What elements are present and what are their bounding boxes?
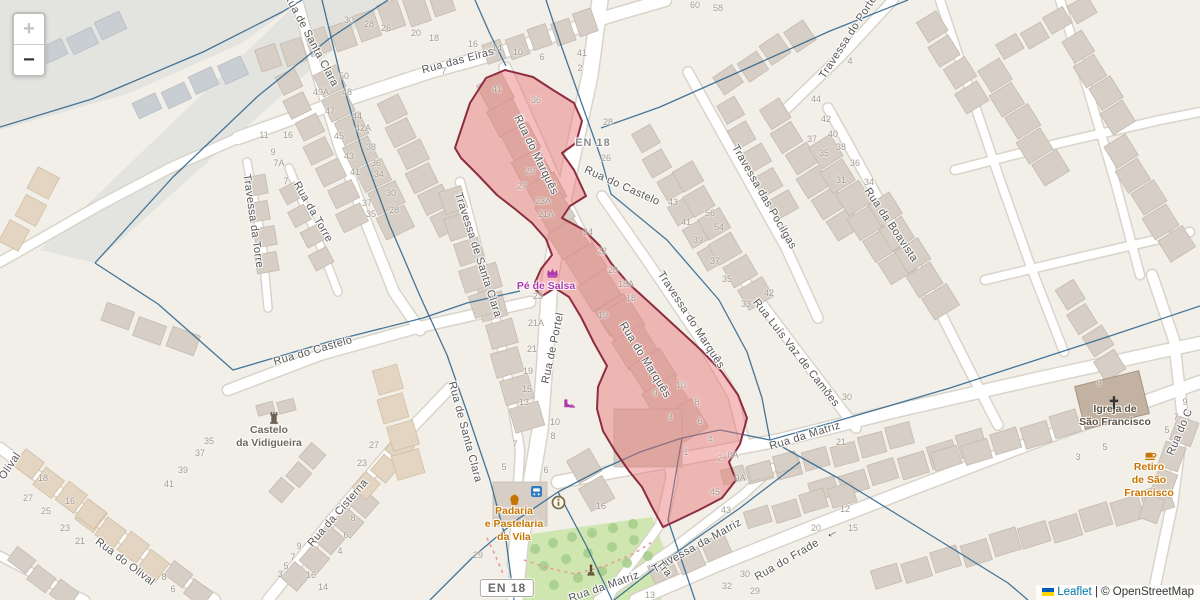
map-canvas[interactable] [0,0,1200,600]
attribution-separator: | [1095,586,1098,598]
ukraine-flag-icon [1042,588,1054,596]
zoom-control[interactable]: + − [12,12,46,77]
leaflet-link[interactable]: Leaflet [1057,586,1092,598]
zoom-out-button[interactable]: − [14,44,44,75]
osm-copyright: © OpenStreetMap [1101,586,1194,598]
road-shield-en18: EN 18 [480,579,534,597]
map[interactable]: Rua das EirasRua de Santa ClaraTravessa … [0,0,1200,600]
attribution-bar: Leaflet | © OpenStreetMap [1036,585,1200,600]
zoom-in-button[interactable]: + [14,14,44,44]
